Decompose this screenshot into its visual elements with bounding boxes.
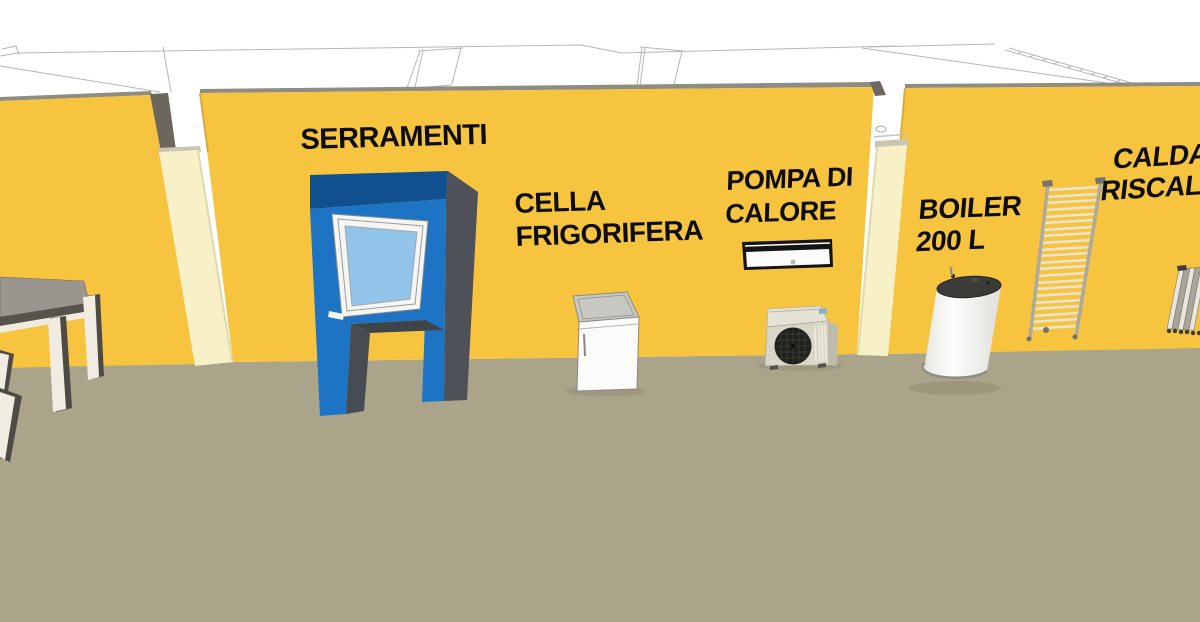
cabinet-door-handle (584, 334, 585, 356)
label-pompa-line2: CALORE (725, 194, 853, 231)
label-boiler-line2: 200 L (915, 222, 1020, 258)
heat-pump-indoor-unit (742, 239, 833, 270)
window-glass (345, 226, 417, 306)
label-calda-line2: RISCAL (1099, 169, 1200, 207)
label-pompa-di-calore: POMPA DI CALORE (725, 161, 854, 232)
scene-canvas (0, 0, 1200, 622)
label-caldaia-riscaldamento: CALDA RISCAL (1099, 138, 1200, 207)
label-cella-line2: FRIGORIFERA (515, 213, 703, 253)
label-serramenti: SERRAMENTI (300, 119, 488, 157)
label-serramenti-text: SERRAMENTI (300, 119, 488, 157)
label-boiler-200l: BOILER 200 L (915, 190, 1023, 258)
label-pompa-line1: POMPA DI (726, 161, 854, 198)
window-sample (328, 214, 428, 320)
cold-room-cabinet (566, 292, 646, 397)
label-cella-frigorifera: CELLA FRIGORIFERA (514, 180, 704, 252)
sketchup-3d-scene: SERRAMENTI CELLA FRIGORIFERA POMPA DI CA… (0, 0, 1200, 622)
label-boiler-line1: BOILER (917, 190, 1022, 226)
